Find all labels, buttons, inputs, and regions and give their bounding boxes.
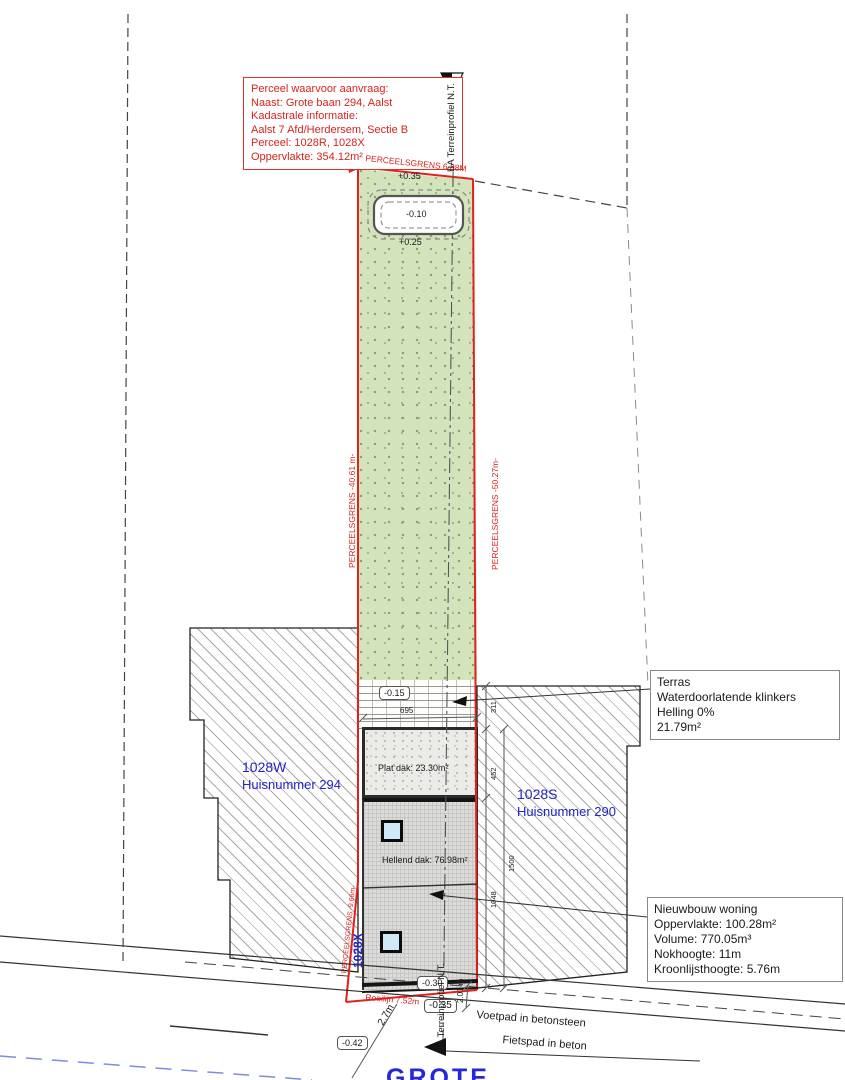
dim-sloped-roof-depth: 1048	[489, 891, 498, 908]
level-terrace: -0.15	[379, 686, 410, 700]
dim-terrace-width: 695	[400, 706, 413, 715]
level-street: -0.42	[337, 1036, 368, 1050]
street-name: GROTE	[386, 1064, 490, 1080]
flat-roof-label: Plat dak: 23.30m²	[378, 763, 449, 773]
terrace-note-line: Terras	[657, 675, 833, 690]
parcel-strip-id: 1028X	[351, 933, 365, 968]
dim-total-depth: 1500	[507, 855, 516, 872]
dim-terrace-depth: 311	[489, 701, 498, 713]
level-pool: -0.10	[406, 209, 427, 219]
parcel-left-id: 1028W	[242, 759, 286, 775]
new-building-note-line: Volume: 770.05m³	[654, 932, 836, 947]
neighbor-building-right	[477, 686, 643, 988]
terrace-note-box: Terras Waterdoorlatende klinkers Helling…	[650, 670, 840, 740]
application-info-box: Perceel waarvoor aanvraag: Naast: Grote …	[243, 77, 463, 170]
new-building-note-line: Nieuwbouw woning	[654, 902, 836, 917]
info-line: Kadastrale informatie:	[251, 110, 455, 124]
terrace-note-line: Waterdoorlatende klinkers	[657, 690, 833, 705]
info-line: Naast: Grote baan 294, Aalst	[251, 97, 455, 111]
site-plan: Perceel waarvoor aanvraag: Naast: Grote …	[0, 0, 845, 1080]
dim-flat-roof-depth: 452	[489, 767, 498, 780]
info-line: Perceel waarvoor aanvraag:	[251, 83, 455, 97]
dim-front-distance: 2.01 m	[456, 979, 465, 1003]
sloped-roof-area	[362, 798, 478, 990]
skylight-bottom	[380, 931, 402, 953]
new-building-note-line: Kroonlijsthoogte: 5.76m	[654, 962, 836, 977]
rooilijn-label: Rooilijn 7.52m	[365, 992, 420, 1007]
level-pool-bottom: +0.25	[399, 237, 422, 247]
new-building-note-line: Oppervlakte: 100.28m²	[654, 917, 836, 932]
new-building-note-line: Nokhoogte: 11m	[654, 947, 836, 962]
dim-sidewalk-width: 2.7m	[376, 1003, 397, 1028]
new-building-note-box: Nieuwbouw woning Oppervlakte: 100.28m² V…	[647, 897, 843, 982]
section-marker-label-bottom: BA Terreinprofiel N.T.	[436, 963, 447, 1052]
terrace-note-line: Helling 0%	[657, 705, 833, 720]
terrace-klinkers-area	[358, 680, 477, 729]
boundary-label-right: PERCEELSGRENS -50.27m-	[490, 458, 500, 570]
neighbor-building-left	[190, 628, 358, 978]
boundary-label-left: PERCEELSGRENS -40.61 m-	[347, 454, 357, 568]
info-line: Perceel: 1028R, 1028X	[251, 137, 455, 151]
terrace-note-line: 21.79m²	[657, 720, 833, 735]
bike-path-label: Fietspad in beton	[502, 1034, 587, 1053]
info-line: Aalst 7 Afd/Herdersem, Sectie B	[251, 124, 455, 138]
parcel-right-house: Huisnummer 290	[517, 804, 616, 819]
section-marker-label-top: BA Terreinprofiel N.T.	[446, 83, 457, 172]
sidewalk-label: Voetpad in betonsteen	[476, 1009, 586, 1030]
sloped-roof-label: Hellend dak: 76.98m²	[382, 855, 468, 865]
level-pool-top: +0.35	[398, 171, 421, 181]
skylight-top	[381, 820, 403, 842]
parcel-left-house: Huisnummer 294	[242, 777, 341, 792]
parcel-right-id: 1028S	[517, 786, 557, 802]
